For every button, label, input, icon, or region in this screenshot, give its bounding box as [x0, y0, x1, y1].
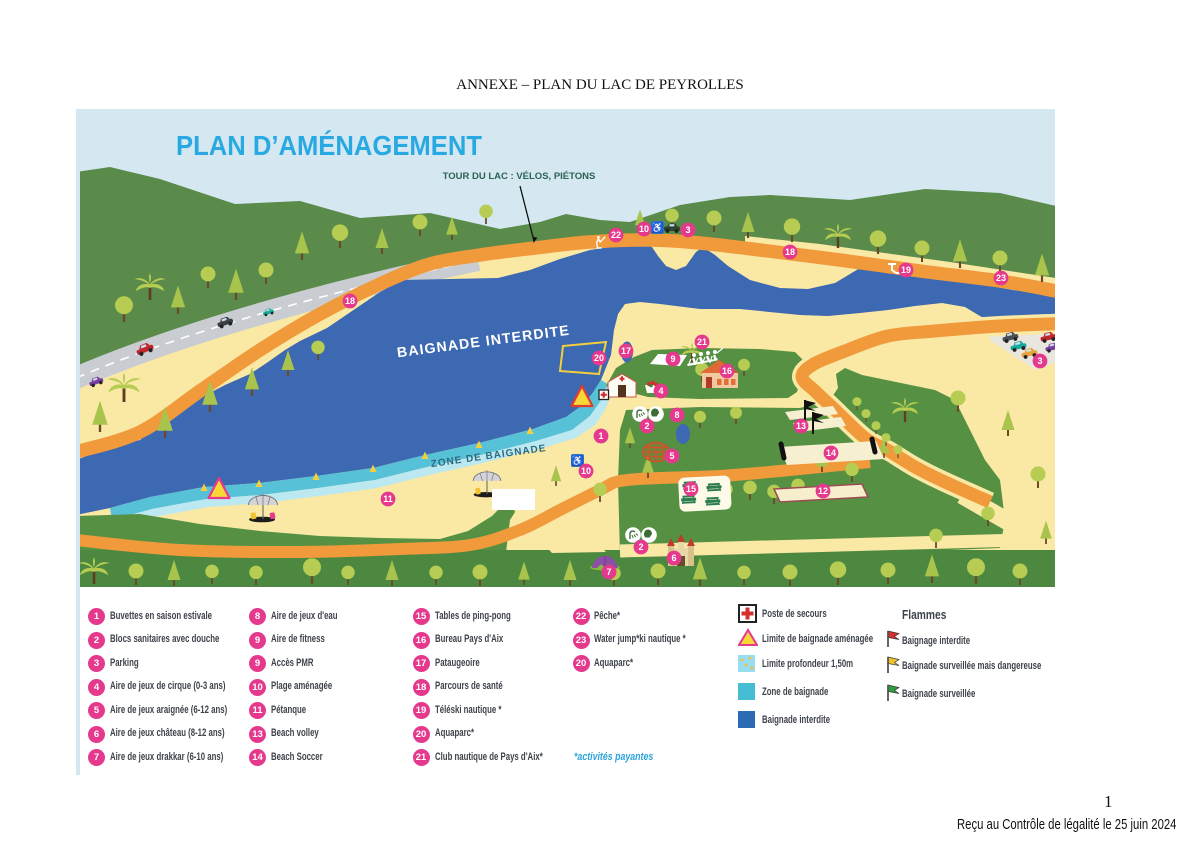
svg-text:13: 13 — [796, 421, 806, 431]
svg-text:7: 7 — [606, 567, 611, 577]
svg-text:3: 3 — [1037, 356, 1042, 366]
svg-text:14: 14 — [826, 448, 836, 458]
svg-text:23: 23 — [996, 273, 1006, 283]
svg-text:10: 10 — [581, 466, 591, 476]
svg-text:18: 18 — [785, 247, 795, 257]
svg-text:3: 3 — [685, 225, 690, 235]
svg-text:22: 22 — [611, 230, 621, 240]
svg-text:17: 17 — [621, 346, 631, 356]
svg-text:20: 20 — [594, 353, 604, 363]
svg-text:11: 11 — [383, 494, 393, 504]
svg-text:TOUR DU LAC : VÉLOS, PIÉTONS: TOUR DU LAC : VÉLOS, PIÉTONS — [443, 171, 596, 182]
svg-text:12: 12 — [818, 486, 828, 496]
svg-text:PLAN D’AMÉNAGEMENT: PLAN D’AMÉNAGEMENT — [176, 130, 482, 161]
svg-text:9: 9 — [670, 354, 675, 364]
svg-text:18: 18 — [345, 296, 355, 306]
svg-text:♿: ♿ — [651, 221, 663, 234]
svg-text:2: 2 — [638, 542, 643, 552]
svg-text:16: 16 — [722, 366, 732, 376]
svg-text:1: 1 — [598, 431, 603, 441]
svg-text:8: 8 — [674, 410, 679, 420]
svg-text:2: 2 — [644, 421, 649, 431]
svg-text:21: 21 — [697, 337, 707, 347]
svg-text:19: 19 — [901, 265, 911, 275]
svg-text:15: 15 — [686, 484, 696, 494]
svg-text:4: 4 — [658, 386, 663, 396]
svg-text:10: 10 — [639, 224, 649, 234]
svg-text:5: 5 — [669, 451, 674, 461]
svg-text:6: 6 — [671, 553, 676, 563]
